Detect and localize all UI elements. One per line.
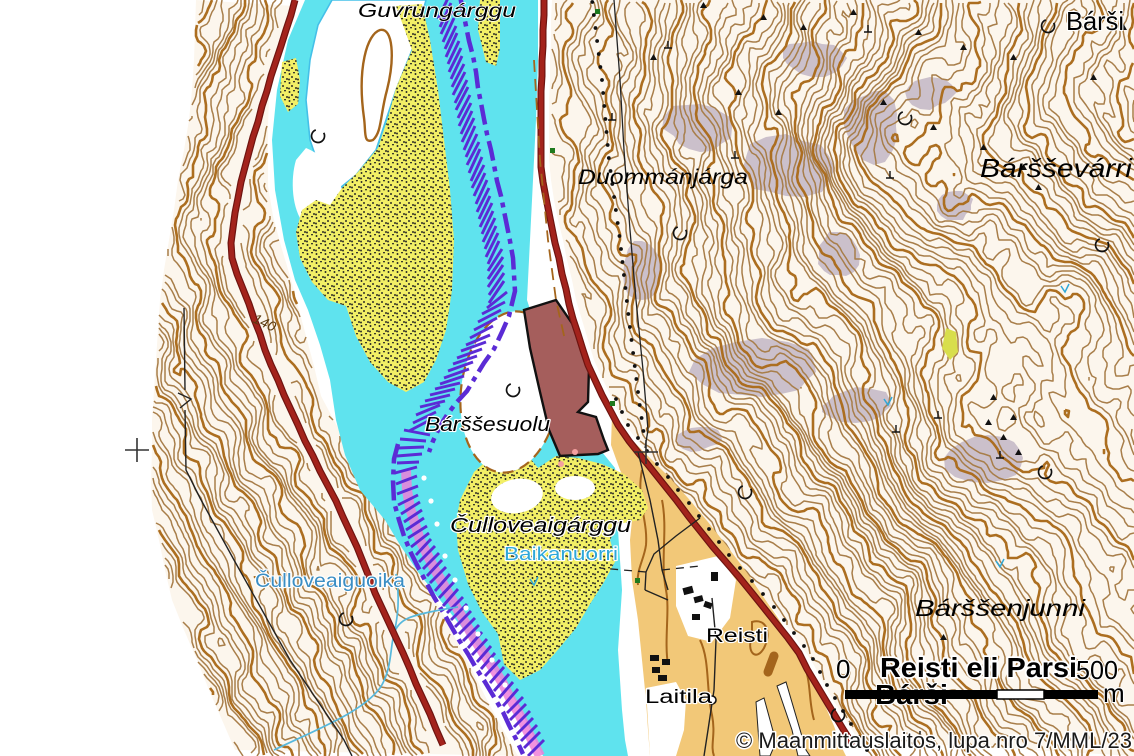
- svg-text:Reisti: Reisti: [706, 626, 768, 647]
- svg-text:Čulloveaigárggu: Čulloveaigárggu: [450, 514, 631, 537]
- svg-text:Bárššesuolu: Bárššesuolu: [425, 414, 550, 436]
- svg-text:Báršševárri: Báršševárri: [980, 153, 1133, 183]
- svg-text:0: 0: [836, 654, 850, 684]
- svg-text:m: m: [1103, 678, 1125, 708]
- svg-text:Duommánjárga: Duommánjárga: [578, 166, 748, 189]
- svg-text:Laitila: Laitila: [645, 687, 713, 708]
- svg-text:Bárššenjunni: Bárššenjunni: [915, 595, 1086, 621]
- svg-text:Bárši: Bárši: [1066, 6, 1124, 36]
- svg-text:Čulloveaiguoika: Čulloveaiguoika: [255, 570, 405, 592]
- svg-text:© Maanmittauslaitos, lupa nro: © Maanmittauslaitos, lupa nro 7/MML/23: [736, 728, 1132, 753]
- svg-text:Baikanuorri: Baikanuorri: [504, 543, 618, 564]
- svg-text:Guvrungárggu: Guvrungárggu: [358, 1, 517, 22]
